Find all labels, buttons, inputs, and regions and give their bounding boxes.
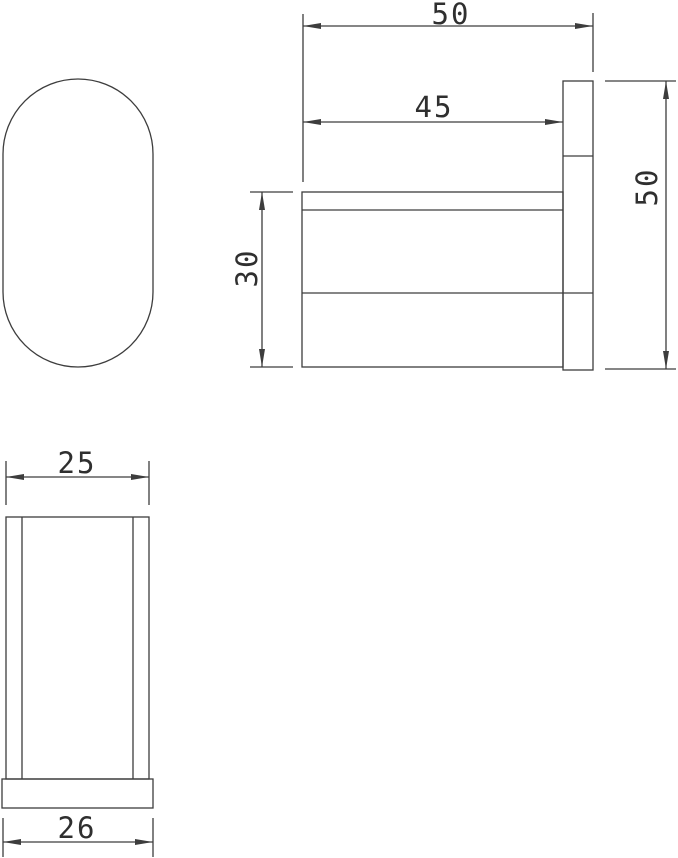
dimension-text: 25: [58, 446, 97, 480]
arrowhead-left: [6, 474, 24, 480]
technical-drawing: 50 45 30 50 25: [0, 0, 678, 858]
dimension-text: 50: [630, 168, 664, 207]
arrowhead-up: [259, 192, 265, 210]
arrowhead-up: [663, 81, 669, 99]
dim-hook-depth: 45: [303, 90, 563, 125]
front-view: [3, 79, 153, 367]
arrowhead-left: [303, 119, 321, 125]
top-view-base-plate: [2, 779, 153, 808]
dimension-text: 45: [415, 90, 454, 124]
dim-hook-height: 30: [230, 192, 293, 367]
arrowhead-right: [131, 474, 149, 480]
drawing-canvas: 50 45 30 50 25: [0, 0, 678, 858]
dimension-text: 26: [58, 811, 97, 845]
dim-plate-height: 50: [605, 81, 676, 369]
side-view-hook-body: [302, 192, 563, 367]
arrowhead-right: [575, 23, 593, 29]
front-view-plate-outline: [3, 79, 153, 367]
arrowhead-right: [135, 839, 153, 845]
top-view-body: [6, 517, 149, 779]
arrowhead-down: [259, 349, 265, 367]
arrowhead-left: [3, 839, 21, 845]
side-view-wall-plate: [563, 81, 593, 370]
arrowhead-left: [303, 23, 321, 29]
dimension-text: 50: [432, 0, 471, 31]
arrowhead-down: [663, 351, 669, 369]
side-view: [302, 81, 593, 370]
arrowhead-right: [545, 119, 563, 125]
dim-base-width: 26: [3, 811, 153, 857]
top-view: [2, 517, 153, 808]
dim-body-width: 25: [6, 446, 149, 505]
dimension-text: 30: [230, 249, 264, 288]
